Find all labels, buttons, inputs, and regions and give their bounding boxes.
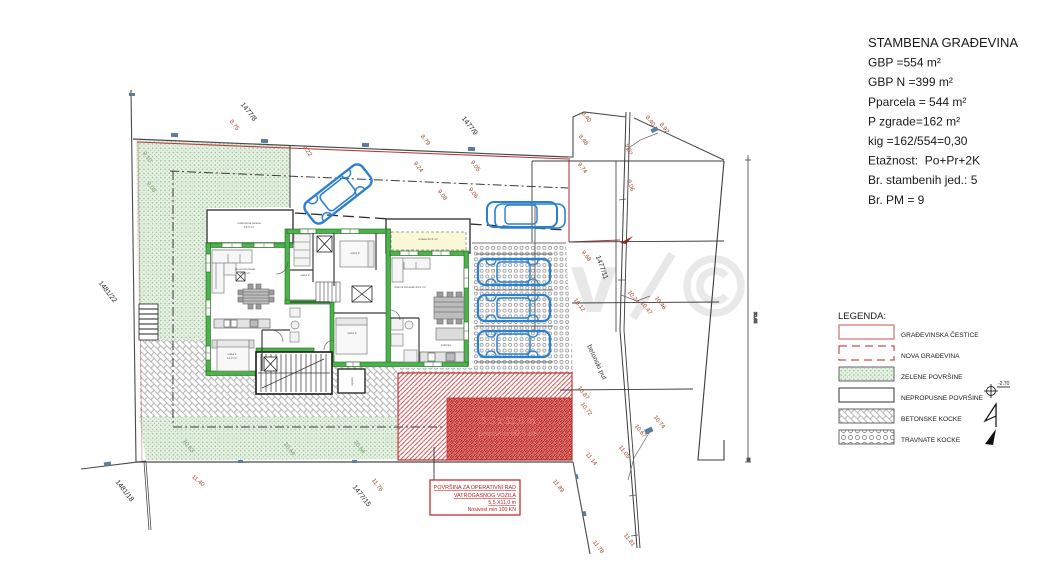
- svg-text:NOVA GRAĐEVINA: NOVA GRAĐEVINA: [901, 353, 960, 360]
- svg-text:sprem.: sprem.: [350, 376, 354, 385]
- svg-text:Br. stambenih jed.: 5: Br. stambenih jed.: 5: [868, 173, 978, 187]
- svg-text:kuhinja: kuhinja: [441, 343, 451, 347]
- svg-text:ZELENE POVRŠINE: ZELENE POVRŠINE: [901, 372, 963, 381]
- svg-text:v: v: [571, 236, 618, 330]
- svg-text:soba 3: soba 3: [350, 251, 359, 255]
- svg-text:Nosivost min 100 KN: Nosivost min 100 KN: [468, 507, 517, 513]
- svg-text:LEGENDA:: LEGENDA:: [838, 311, 886, 322]
- svg-text:TRAVNATE KOCKE: TRAVNATE KOCKE: [901, 437, 961, 444]
- svg-text:GRAĐEVINSKA ČESTICE: GRAĐEVINSKA ČESTICE: [901, 330, 979, 339]
- svg-text:30.65: 30.65: [753, 312, 758, 324]
- svg-text:GBP =554 m²: GBP =554 m²: [868, 56, 941, 70]
- svg-text:18,5 m²: 18,5 m²: [244, 225, 254, 229]
- svg-text:NEPROPUSNE POVRŠINE: NEPROPUSNE POVRŠINE: [901, 393, 984, 402]
- svg-text:25,6 m²: 25,6 m²: [240, 271, 250, 275]
- svg-text:kig =162/554=0,30: kig =162/554=0,30: [868, 134, 968, 148]
- svg-text:STAMBENA GRAĐEVINA: STAMBENA GRAĐEVINA: [868, 35, 1018, 50]
- svg-text:dnevni boravak 24,2 m²: dnevni boravak 24,2 m²: [394, 285, 425, 289]
- svg-text:BETONSKE KOCKE: BETONSKE KOCKE: [901, 416, 962, 423]
- svg-text:VATROGASNOG VOZILA: VATROGASNOG VOZILA: [454, 493, 517, 499]
- svg-text:Br. PM = 9: Br. PM = 9: [868, 193, 925, 207]
- svg-text:P zgrade=162 m²: P zgrade=162 m²: [868, 114, 960, 128]
- svg-text:Pparcela = 544 m²: Pparcela = 544 m²: [868, 95, 966, 109]
- svg-text:povrsina 60,5 m²: povrsina 60,5 m²: [478, 429, 538, 438]
- svg-text:-2.70: -2.70: [998, 381, 1010, 387]
- svg-text:GBP N =399 m²: GBP N =399 m²: [868, 75, 953, 89]
- svg-text:Etažnost: Po+Pr+2K: Etažnost: Po+Pr+2K: [868, 154, 980, 168]
- svg-text:5,5 X11,0 m: 5,5 X11,0 m: [488, 500, 516, 506]
- svg-text:terasa 22,6 m²: terasa 22,6 m²: [418, 237, 437, 241]
- svg-text:soba 2: soba 2: [300, 273, 309, 277]
- svg-text:11,2 m²: 11,2 m²: [227, 356, 237, 360]
- svg-text:soba 4: soba 4: [347, 331, 356, 335]
- svg-text:POVRŠINA ZA OPERATIVNI RAD: POVRŠINA ZA OPERATIVNI RAD: [434, 484, 516, 491]
- svg-text:5,5 x 11,0 m: 5,5 x 11,0 m: [481, 416, 535, 427]
